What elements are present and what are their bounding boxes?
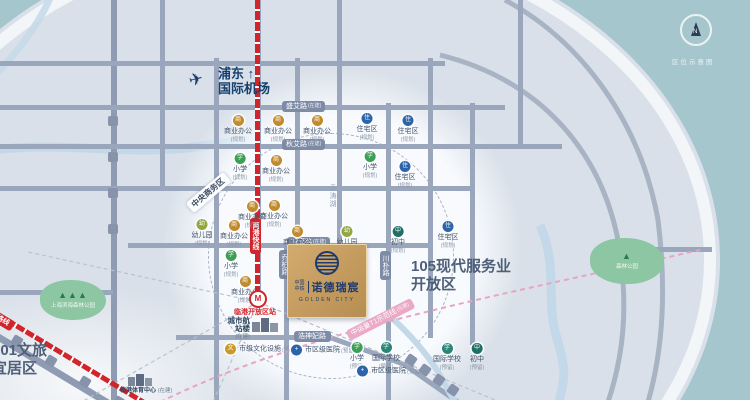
- map-label-text: 盛艾路: [286, 101, 307, 112]
- poi-icon: 中: [471, 343, 482, 354]
- poi-label: 住宅区: [438, 234, 459, 241]
- zone-101-line1: 101文旅: [0, 342, 47, 360]
- poi-sub-label: (规划): [391, 246, 406, 254]
- map-label-pill: 川朴路 (在建): [380, 251, 391, 280]
- project-plaque: 中国 中铁 诺德瑞宸 GOLDEN CITY: [287, 244, 367, 318]
- poi-sub-label: (规划): [398, 181, 413, 189]
- poi-icon: 幼: [197, 219, 208, 230]
- poi-label: 幼儿园: [192, 232, 213, 239]
- road-name-chip: [108, 224, 118, 234]
- road-name-chip: [108, 152, 118, 162]
- sports-center-label: 临港体育中心 (在建): [120, 388, 172, 395]
- poi-sub-label: (预留): [440, 363, 455, 371]
- poi-icon: 商: [273, 115, 284, 126]
- zone-101-label: 101文旅 宜居区: [0, 342, 47, 378]
- poi-sub-label: (预留): [470, 363, 485, 371]
- poi-label: 商业办公: [262, 168, 290, 175]
- poi-sub-label: (规划): [310, 135, 325, 143]
- map-label-sub: (在建): [368, 259, 379, 272]
- poi-sub-label: (规划): [233, 173, 248, 181]
- poi-sub-label: (规划): [227, 240, 242, 248]
- city-terminal-sub: (在建): [222, 334, 250, 340]
- poi-icon: 学: [225, 250, 236, 261]
- park: ▲▲▲ 上海滨海森林公园: [40, 280, 106, 320]
- tree-icons: ▲▲▲: [58, 291, 88, 300]
- park-label: 森林公园: [616, 262, 638, 270]
- poi-sub-label: (规划): [360, 133, 375, 141]
- metro-station-icon: M: [249, 290, 267, 308]
- poi-icon: 商: [271, 155, 282, 166]
- poi-icon: 住: [403, 115, 414, 126]
- poi-label: 小学: [233, 166, 247, 173]
- zone-105-label: 105现代服务业 开放区: [411, 258, 511, 294]
- poi-marker: 商 商业办公 (规划): [262, 155, 290, 183]
- poi-marker: 住 住宅区 (规划): [438, 221, 459, 249]
- poi-icon: 商: [247, 201, 258, 212]
- poi-label: 市区级医院: [305, 346, 340, 353]
- project-brand: 中国 中铁: [294, 281, 308, 293]
- sports-center-name: 临港体育中心: [120, 388, 156, 394]
- poi-icon: 学: [381, 342, 392, 353]
- map-label-sub: (在建): [308, 101, 321, 112]
- poi-icon: 学: [351, 342, 362, 353]
- zone-105-line1: 105现代服务业: [411, 258, 511, 276]
- road-name-chip: [108, 188, 118, 198]
- map-overlay-lines: [0, 0, 750, 400]
- map-label-text: 浩神妃路: [298, 331, 326, 342]
- poi-label: 商业办公: [303, 128, 331, 135]
- poi-marker: 中 初中 (预留): [470, 343, 485, 371]
- poi-sub-label: (规划): [271, 135, 286, 143]
- poi-marker: 商 商业办公 (规划): [224, 115, 252, 143]
- poi-label: 住宅区: [398, 128, 419, 135]
- poi-sub-label: (规划): [245, 221, 260, 229]
- poi-marker: 商 商业办公 (规划): [303, 115, 331, 143]
- project-latin-name: GOLDEN CITY: [299, 297, 355, 303]
- poi-icon: +: [291, 345, 302, 356]
- poi-icon: 商: [312, 115, 323, 126]
- poi-marker: 文 市级文化设施 (预留): [225, 344, 297, 355]
- poi-label: 市级文化设施: [239, 345, 281, 352]
- compass-icon: N: [680, 14, 712, 46]
- map-caption: 区位示意图: [672, 56, 715, 66]
- metro-station-label: 临港开放区站: [234, 307, 276, 317]
- map-label-pill: 浩神妃路: [294, 331, 331, 342]
- poi-marker: 住 住宅区 (规划): [357, 113, 378, 141]
- poi-sub-label: (规划): [195, 239, 210, 247]
- project-name: 诺德瑞宸: [312, 279, 360, 295]
- project-logo-icon: [315, 251, 339, 275]
- poi-label: 初中: [470, 356, 484, 363]
- poi-icon: +: [357, 366, 368, 377]
- poi-label: 小学: [350, 355, 364, 362]
- poi-label: 住宅区: [395, 174, 416, 181]
- location-map: ▲▲▲ 上海滨海森林公园 ▲ 森林公园 盛艾路 (在建) 秋艾路 (在建) 祝享…: [0, 0, 750, 400]
- city-terminal-building-icon: [252, 318, 278, 332]
- poi-sub-label: (规划): [269, 175, 284, 183]
- poi-label: 小学: [224, 263, 238, 270]
- poi-marker: 商 商业办公 (规划): [260, 200, 288, 228]
- poi-marker: 商 商业办公 (规划): [264, 115, 292, 143]
- poi-icon: 学: [442, 343, 453, 354]
- poi-icon: 学: [364, 151, 375, 162]
- poi-label: 住宅区: [357, 126, 378, 133]
- poi-label: 初中: [391, 239, 405, 246]
- river-east: [540, 225, 564, 400]
- map-label-text: 川朴路: [380, 255, 391, 276]
- poi-icon: 商: [240, 276, 251, 287]
- poi-icon: 商: [269, 200, 280, 211]
- poi-marker: 学 国际学校 (预留): [433, 343, 461, 371]
- park-label: 上海滨海森林公园: [51, 301, 95, 309]
- zone-105-line2: 开放区: [411, 276, 511, 294]
- poi-icon: 商: [233, 115, 244, 126]
- poi-icon: 住: [362, 113, 373, 124]
- poi-marker: 住 住宅区 (规划): [398, 115, 419, 143]
- zone-101-line2: 宜居区: [0, 360, 47, 378]
- poi-label: 商业办公: [260, 213, 288, 220]
- poi-label: 商业办公: [224, 128, 252, 135]
- map-label-pill: 盛艾路 (在建): [282, 101, 325, 112]
- poi-label: 商业办公: [264, 128, 292, 135]
- poi-icon: 商: [292, 226, 303, 237]
- city-terminal-name: 城市航站楼: [222, 317, 250, 334]
- airport-label-line1: 浦东 ↑: [218, 66, 270, 81]
- poi-icon: 学: [234, 153, 245, 164]
- city-terminal-label: 城市航站楼 (在建): [222, 317, 250, 340]
- poi-marker: + 市区级医院 (预留): [291, 345, 356, 356]
- road-name-chip: [108, 116, 118, 126]
- poi-marker: 幼 幼儿园 (规划): [192, 219, 213, 247]
- sports-center-building-icon: [128, 374, 152, 386]
- poi-label: 商业办公: [220, 233, 248, 240]
- tree-icons: ▲: [622, 252, 632, 261]
- poi-sub-label: (规划): [401, 135, 416, 143]
- poi-icon: 幼: [342, 226, 353, 237]
- poi-marker: 中 初中 (规划): [391, 226, 406, 254]
- poi-marker: 住 住宅区 (规划): [395, 161, 416, 189]
- poi-sub-label: (规划): [231, 135, 246, 143]
- poi-label: 国际学校: [433, 356, 461, 363]
- poi-sub-label: (规划): [363, 171, 378, 179]
- poi-label: 国际学校: [372, 355, 400, 362]
- project-brand-line2: 中铁: [294, 287, 304, 293]
- poi-marker: 学 小学 (规划): [233, 153, 248, 181]
- poi-icon: 住: [443, 221, 454, 232]
- poi-icon: 住: [400, 161, 411, 172]
- poi-marker: 学 小学 (规划): [363, 151, 378, 179]
- poi-label: 小学: [363, 164, 377, 171]
- poi-sub-label: (预留): [407, 367, 422, 375]
- poi-icon: 文: [225, 344, 236, 355]
- poi-marker: + 市区级医院 (预留): [357, 366, 422, 377]
- lake-label: 香涛湖: [327, 184, 337, 208]
- poi-sub-label: (规划): [441, 241, 456, 249]
- park: ▲ 森林公园: [590, 238, 664, 284]
- poi-label: 市区级医院: [371, 367, 406, 374]
- airport-label-line2: 国际机场: [218, 81, 270, 96]
- poi-marker: 学 小学 (规划): [224, 250, 239, 278]
- compass-north-letter: N: [693, 29, 697, 35]
- sports-center-sub: (在建): [158, 388, 173, 394]
- airport-label: 浦东 ↑ 国际机场: [218, 66, 270, 96]
- poi-icon: 中: [392, 226, 403, 237]
- poi-sub-label: (规划): [267, 220, 282, 228]
